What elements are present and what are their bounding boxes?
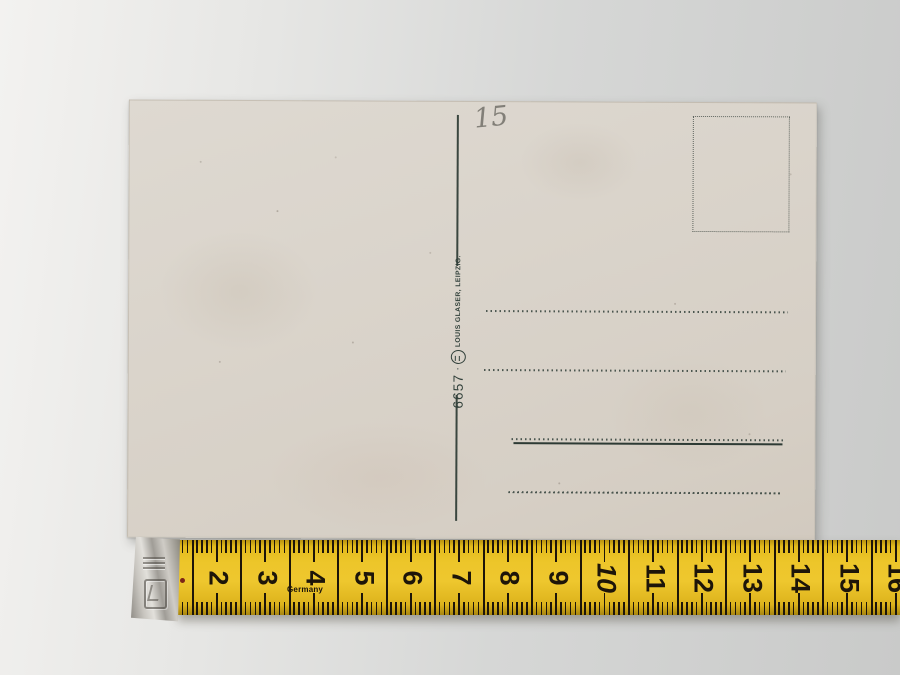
tick-mark: [720, 540, 722, 553]
stamp-box: [692, 116, 790, 232]
tick-mark: [497, 602, 499, 615]
tick-mark: [264, 540, 266, 562]
tick-mark: [342, 602, 344, 615]
publisher-logo-icon: [450, 350, 465, 364]
tick-mark: [390, 602, 392, 615]
tick-mark: [846, 540, 848, 562]
tick-mark: [497, 540, 499, 553]
tick-mark: [599, 602, 601, 615]
tick-mark: [259, 540, 261, 553]
tick-mark: [250, 602, 252, 615]
tape-number: 6: [399, 570, 426, 585]
tick-mark: [560, 540, 562, 553]
tick-mark: [449, 540, 451, 553]
tick-mark: [841, 540, 843, 553]
tick-mark: [352, 602, 354, 615]
publisher-imprint: 6657 · LOUIS GLASER, LEIPZIG.: [450, 267, 467, 397]
tick-mark: [803, 540, 805, 553]
tick-mark: [769, 602, 771, 615]
tick-mark: [774, 540, 776, 615]
tick-mark: [550, 540, 552, 553]
tick-mark: [541, 540, 543, 553]
tick-mark: [701, 593, 703, 615]
tick-mark: [701, 540, 703, 562]
tick-mark: [274, 540, 276, 553]
tick-mark: [424, 602, 426, 615]
tick-mark: [657, 540, 659, 553]
tick-mark: [201, 602, 203, 615]
tape-number: 13: [738, 562, 765, 592]
tick-mark: [182, 540, 184, 553]
tick-mark: [458, 540, 460, 562]
tape-number: 7: [447, 570, 474, 585]
tick-mark: [255, 540, 257, 553]
tick-mark: [885, 602, 887, 615]
tick-mark: [570, 540, 572, 553]
tick-mark: [492, 602, 494, 615]
tick-mark: [715, 540, 717, 553]
tick-mark: [216, 540, 218, 562]
tick-mark: [478, 540, 480, 553]
address-line: [486, 310, 788, 313]
tick-mark: [187, 540, 189, 553]
tick-mark: [754, 540, 756, 553]
publisher-name: LOUIS GLASER, LEIPZIG.: [454, 255, 461, 347]
tape-number: 14: [787, 562, 814, 592]
tick-mark: [759, 602, 761, 615]
tick-mark: [206, 602, 208, 615]
tick-mark: [594, 540, 596, 553]
tick-mark: [807, 602, 809, 615]
tick-mark: [405, 540, 407, 553]
tick-mark: [880, 540, 882, 553]
tick-mark: [381, 540, 383, 553]
tick-mark: [361, 540, 363, 562]
tape-start-dot: [180, 578, 185, 583]
paper-speckles: [130, 101, 132, 103]
tick-mark: [851, 602, 853, 615]
tick-mark: [740, 602, 742, 615]
tick-mark: [633, 602, 635, 615]
tick-mark: [458, 593, 460, 615]
tick-mark: [550, 602, 552, 615]
tick-mark: [516, 602, 518, 615]
tick-mark: [400, 602, 402, 615]
tick-mark: [812, 602, 814, 615]
tick-mark: [895, 540, 897, 562]
tape-number: 4: [302, 570, 329, 585]
tick-mark: [225, 602, 227, 615]
tick-mark: [841, 602, 843, 615]
tick-mark: [817, 540, 819, 553]
tick-mark: [386, 540, 388, 615]
tick-mark: [322, 602, 324, 615]
tape-number: 5: [350, 570, 377, 585]
tick-mark: [890, 540, 892, 553]
tick-mark: [439, 602, 441, 615]
tick-mark: [371, 602, 373, 615]
tick-mark: [536, 602, 538, 615]
tick-mark: [536, 540, 538, 553]
tick-mark: [526, 540, 528, 553]
tick-mark: [575, 540, 577, 553]
tape-number: 2: [205, 570, 232, 585]
tick-mark: [371, 540, 373, 553]
tick-mark: [575, 602, 577, 615]
tick-mark: [604, 540, 606, 562]
tick-mark: [793, 540, 795, 553]
tick-mark: [274, 602, 276, 615]
tick-mark: [526, 602, 528, 615]
tick-mark: [279, 540, 281, 553]
tick-mark: [356, 602, 358, 615]
tick-mark: [337, 540, 339, 615]
center-divider-line-bottom: [455, 395, 457, 521]
postcard: 6657 · LOUIS GLASER, LEIPZIG. 15: [127, 100, 817, 541]
tick-mark: [468, 540, 470, 553]
tick-mark: [710, 540, 712, 553]
tick-mark: [289, 540, 291, 615]
tick-mark: [783, 602, 785, 615]
tick-mark: [415, 540, 417, 553]
tick-mark: [483, 540, 485, 615]
tick-mark: [885, 540, 887, 553]
tick-mark: [565, 540, 567, 553]
tape-number: 16: [884, 562, 900, 592]
tick-mark: [832, 602, 834, 615]
tick-mark: [647, 540, 649, 553]
tick-mark: [681, 540, 683, 553]
tick-mark: [502, 602, 504, 615]
tape-number: 15: [835, 562, 862, 592]
tick-mark: [735, 602, 737, 615]
tick-mark: [652, 540, 654, 562]
tick-mark: [298, 602, 300, 615]
tick-mark: [521, 540, 523, 553]
tick-mark: [812, 540, 814, 553]
tick-mark: [507, 593, 509, 615]
tick-mark: [293, 540, 295, 553]
tick-mark: [677, 540, 679, 615]
tick-mark: [507, 540, 509, 562]
tick-mark: [856, 540, 858, 553]
tick-mark: [609, 540, 611, 553]
tick-mark: [332, 602, 334, 615]
address-line: [508, 491, 780, 494]
tick-mark: [749, 593, 751, 615]
tick-mark: [516, 540, 518, 553]
tick-mark: [478, 602, 480, 615]
tick-mark: [395, 602, 397, 615]
tape-number: 3: [253, 570, 280, 585]
tick-mark: [778, 602, 780, 615]
tick-mark: [803, 602, 805, 615]
tick-mark: [352, 540, 354, 553]
handwritten-note: 15: [472, 100, 509, 134]
tick-mark: [720, 602, 722, 615]
tick-mark: [376, 540, 378, 553]
tick-mark: [604, 593, 606, 615]
tick-mark: [531, 540, 533, 615]
tick-mark: [264, 593, 266, 615]
tick-mark: [269, 540, 271, 553]
tape-origin-label: Germany: [287, 585, 323, 594]
photo-background: 6657 · LOUIS GLASER, LEIPZIG. 15 Germany…: [0, 0, 900, 675]
tick-mark: [303, 540, 305, 553]
tick-mark: [827, 602, 829, 615]
tick-mark: [512, 602, 514, 615]
measuring-tape: Germany 2345678910111213141516: [178, 540, 900, 615]
tape-metal-clip: [131, 535, 180, 624]
tick-mark: [599, 540, 601, 553]
tick-mark: [740, 540, 742, 553]
tick-mark: [866, 602, 868, 615]
tick-mark: [279, 602, 281, 615]
tick-mark: [284, 540, 286, 553]
tick-mark: [730, 602, 732, 615]
tick-mark: [230, 540, 232, 553]
tick-mark: [492, 540, 494, 553]
tick-mark: [565, 602, 567, 615]
tick-mark: [725, 540, 727, 615]
tick-mark: [706, 540, 708, 553]
tick-mark: [895, 593, 897, 615]
tick-mark: [783, 540, 785, 553]
tick-mark: [851, 540, 853, 553]
tick-mark: [521, 602, 523, 615]
tick-mark: [890, 602, 892, 615]
tape-number: 11: [641, 563, 668, 592]
tick-mark: [846, 593, 848, 615]
tick-mark: [672, 602, 674, 615]
tick-mark: [623, 540, 625, 553]
tick-mark: [303, 602, 305, 615]
tick-mark: [580, 540, 582, 615]
tick-mark: [875, 602, 877, 615]
tick-mark: [662, 540, 664, 553]
tick-mark: [487, 602, 489, 615]
tick-mark: [837, 540, 839, 553]
address-line-solid: [513, 442, 782, 446]
tick-mark: [788, 540, 790, 553]
tick-mark: [696, 540, 698, 553]
tick-mark: [245, 602, 247, 615]
tape-number: 10: [593, 562, 620, 592]
address-line: [511, 438, 783, 441]
tick-mark: [764, 602, 766, 615]
tick-mark: [871, 540, 873, 615]
tick-mark: [856, 602, 858, 615]
tick-mark: [628, 540, 630, 615]
tick-mark: [196, 540, 198, 553]
imprint-number: 6657: [450, 374, 465, 409]
tick-mark: [880, 602, 882, 615]
tick-mark: [419, 602, 421, 615]
tick-mark: [429, 602, 431, 615]
tick-mark: [613, 602, 615, 615]
tick-mark: [449, 602, 451, 615]
tick-mark: [691, 540, 693, 553]
paper-stain: [520, 122, 640, 203]
tick-mark: [361, 593, 363, 615]
tick-mark: [473, 540, 475, 553]
tick-mark: [866, 540, 868, 553]
tick-mark: [618, 540, 620, 553]
tick-mark: [633, 540, 635, 553]
tick-mark: [609, 602, 611, 615]
tick-mark: [206, 540, 208, 553]
tick-mark: [347, 540, 349, 553]
tick-mark: [356, 540, 358, 553]
tick-mark: [647, 602, 649, 615]
tick-mark: [638, 540, 640, 553]
tick-mark: [453, 540, 455, 553]
tick-mark: [735, 540, 737, 553]
tick-mark: [463, 540, 465, 553]
tick-mark: [395, 540, 397, 553]
tick-mark: [221, 602, 223, 615]
tick-mark: [657, 602, 659, 615]
tick-mark: [638, 602, 640, 615]
tick-mark: [555, 540, 557, 562]
tick-mark: [584, 602, 586, 615]
tick-mark: [832, 540, 834, 553]
tick-mark: [759, 540, 761, 553]
tick-mark: [429, 540, 431, 553]
tick-mark: [192, 540, 194, 615]
tick-mark: [643, 540, 645, 553]
tick-mark: [230, 602, 232, 615]
tick-mark: [744, 540, 746, 553]
tick-mark: [221, 540, 223, 553]
tape-number: 9: [544, 570, 571, 585]
tick-mark: [643, 602, 645, 615]
tick-mark: [667, 540, 669, 553]
tick-mark: [405, 602, 407, 615]
tick-mark: [424, 540, 426, 553]
tick-mark: [667, 602, 669, 615]
tick-mark: [182, 602, 184, 615]
tick-mark: [453, 602, 455, 615]
tick-mark: [444, 602, 446, 615]
tick-mark: [662, 602, 664, 615]
tick-mark: [434, 540, 436, 615]
tick-mark: [594, 602, 596, 615]
tick-mark: [541, 602, 543, 615]
tick-mark: [313, 593, 315, 615]
tick-mark: [211, 602, 213, 615]
tick-mark: [250, 540, 252, 553]
tick-mark: [347, 602, 349, 615]
imprint-separator: ·: [452, 367, 464, 371]
center-divider-line-top: [456, 115, 458, 266]
tick-mark: [298, 540, 300, 553]
tick-mark: [410, 593, 412, 615]
tick-mark: [308, 602, 310, 615]
tick-mark: [764, 540, 766, 553]
tick-mark: [570, 602, 572, 615]
tick-mark: [744, 602, 746, 615]
tick-mark: [473, 602, 475, 615]
tick-mark: [613, 540, 615, 553]
tick-mark: [837, 602, 839, 615]
tape-number: 12: [690, 562, 717, 592]
tick-mark: [318, 602, 320, 615]
tick-mark: [589, 602, 591, 615]
tick-mark: [807, 540, 809, 553]
tick-mark: [332, 540, 334, 553]
tick-mark: [788, 602, 790, 615]
tick-mark: [439, 540, 441, 553]
tick-mark: [463, 602, 465, 615]
tick-mark: [822, 540, 824, 615]
tick-mark: [696, 602, 698, 615]
tick-mark: [623, 602, 625, 615]
tick-mark: [652, 593, 654, 615]
tick-mark: [584, 540, 586, 553]
tick-mark: [769, 540, 771, 553]
tick-mark: [381, 602, 383, 615]
tick-mark: [546, 540, 548, 553]
tick-mark: [211, 540, 213, 553]
tick-mark: [618, 602, 620, 615]
tick-mark: [798, 593, 800, 615]
tick-mark: [390, 540, 392, 553]
tick-mark: [225, 540, 227, 553]
tick-mark: [875, 540, 877, 553]
tick-mark: [444, 540, 446, 553]
tick-mark: [710, 602, 712, 615]
tick-mark: [245, 540, 247, 553]
tick-mark: [259, 602, 261, 615]
tick-mark: [235, 540, 237, 553]
tick-mark: [861, 602, 863, 615]
tick-mark: [201, 540, 203, 553]
tick-mark: [861, 540, 863, 553]
tick-mark: [318, 540, 320, 553]
tick-mark: [817, 602, 819, 615]
tick-mark: [308, 540, 310, 553]
tick-mark: [313, 540, 315, 562]
paper-stain: [159, 231, 320, 352]
tick-mark: [730, 540, 732, 553]
tick-mark: [706, 602, 708, 615]
tick-mark: [827, 540, 829, 553]
tick-mark: [322, 540, 324, 553]
tick-mark: [715, 602, 717, 615]
tick-mark: [269, 602, 271, 615]
tick-mark: [366, 540, 368, 553]
tick-mark: [255, 602, 257, 615]
tick-mark: [555, 593, 557, 615]
tick-mark: [468, 602, 470, 615]
tick-mark: [327, 602, 329, 615]
tick-mark: [366, 602, 368, 615]
tape-number: 8: [496, 570, 523, 585]
tick-mark: [487, 540, 489, 553]
tick-mark: [560, 602, 562, 615]
tick-mark: [240, 540, 242, 615]
tick-mark: [502, 540, 504, 553]
tick-mark: [793, 602, 795, 615]
tick-mark: [686, 540, 688, 553]
tick-mark: [749, 540, 751, 562]
tick-mark: [342, 540, 344, 553]
tick-mark: [327, 540, 329, 553]
tick-mark: [376, 602, 378, 615]
tick-mark: [512, 540, 514, 553]
clip-emboss-logo: [144, 579, 167, 609]
